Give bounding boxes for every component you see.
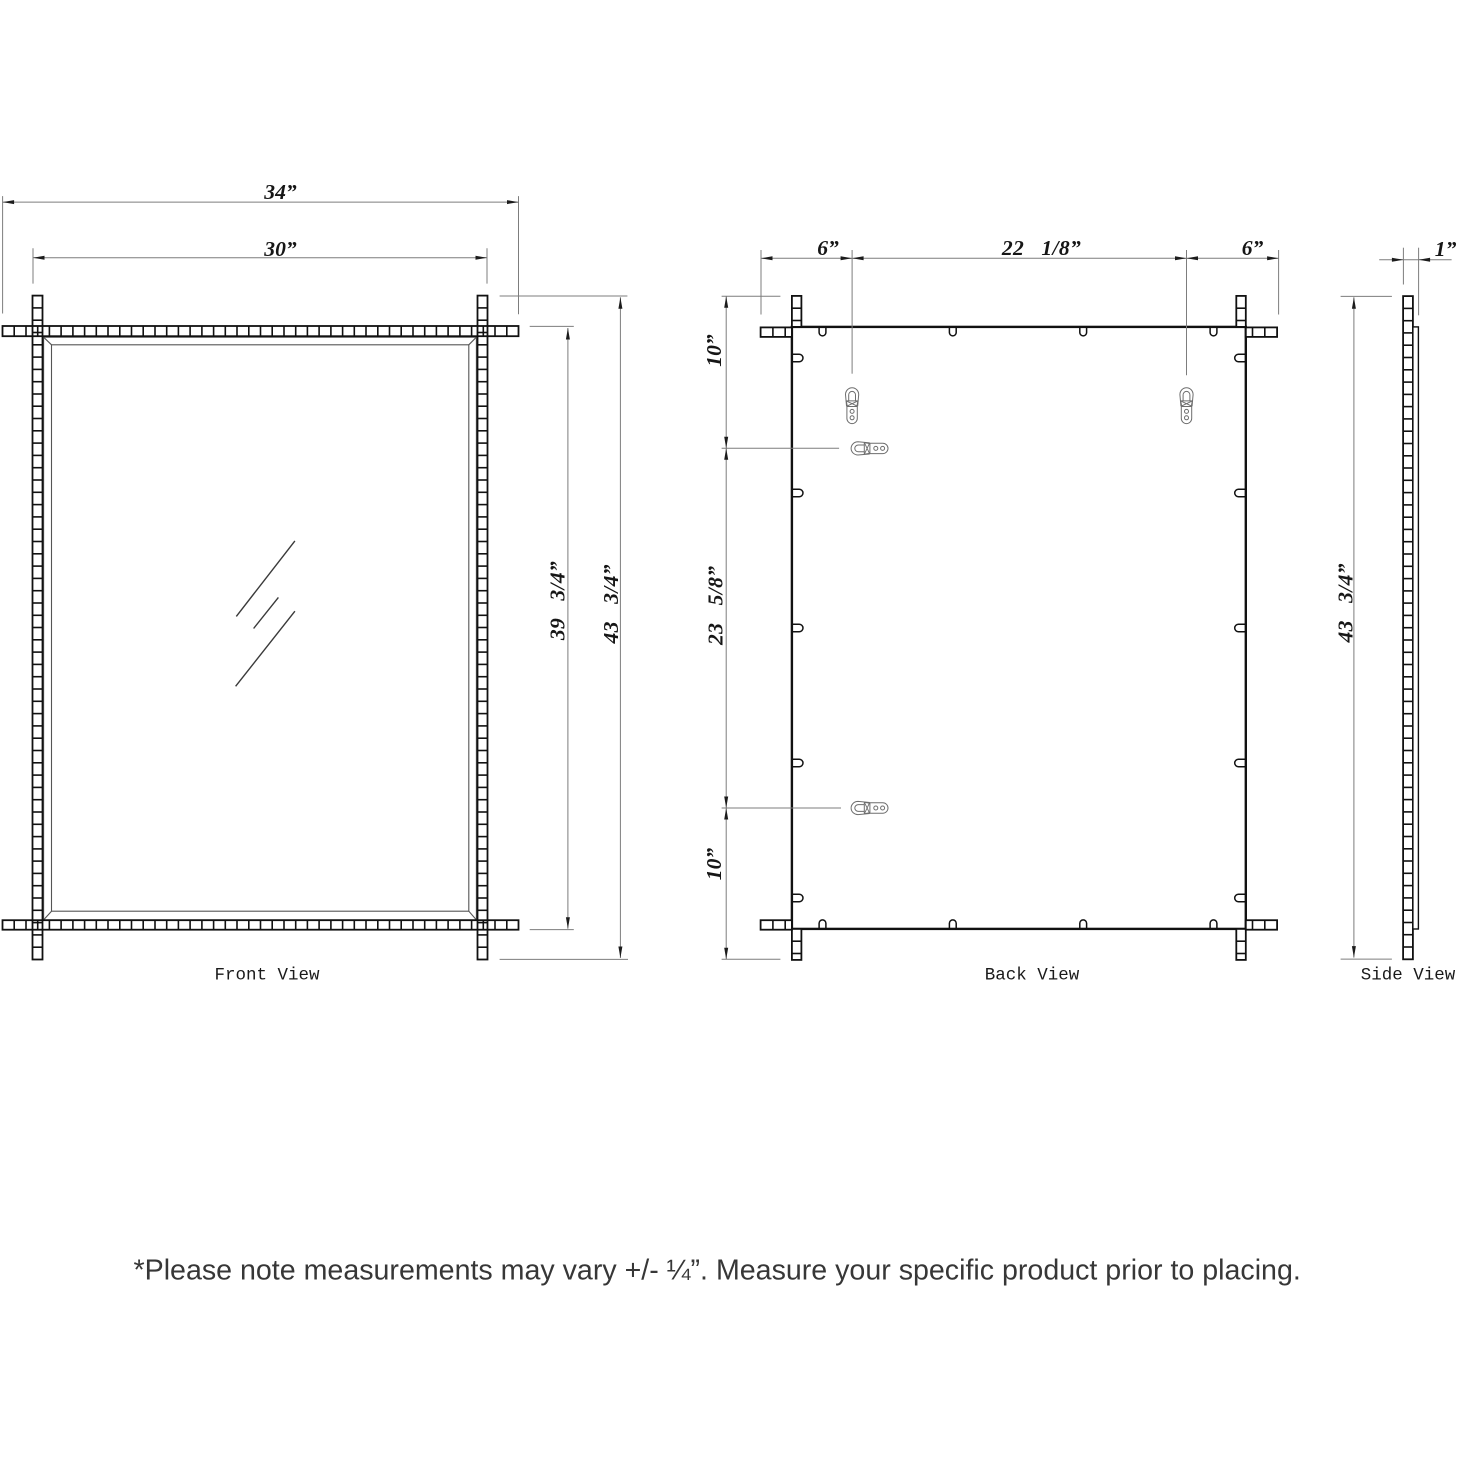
svg-text:30”: 30” [263,237,297,261]
svg-text:34”: 34” [263,180,297,204]
svg-text:39 3/4”: 39 3/4” [546,561,570,641]
svg-text:43 3/4”: 43 3/4” [599,564,623,644]
svg-text:Back View: Back View [985,966,1080,986]
svg-text:Front View: Front View [214,966,320,986]
svg-text:Side View: Side View [1361,966,1456,986]
svg-text:22 1/8”: 22 1/8” [1001,236,1081,260]
svg-text:43 3/4”: 43 3/4” [1333,563,1357,643]
svg-text:6”: 6” [1242,236,1264,260]
svg-text:10”: 10” [702,334,726,367]
svg-text:*Please note measurements may: *Please note measurements may vary +/- ¼… [134,1254,1301,1286]
svg-text:10”: 10” [702,848,726,881]
svg-text:1”: 1” [1435,237,1457,261]
svg-text:23 5/8”: 23 5/8” [704,566,728,646]
svg-text:6”: 6” [817,236,839,260]
